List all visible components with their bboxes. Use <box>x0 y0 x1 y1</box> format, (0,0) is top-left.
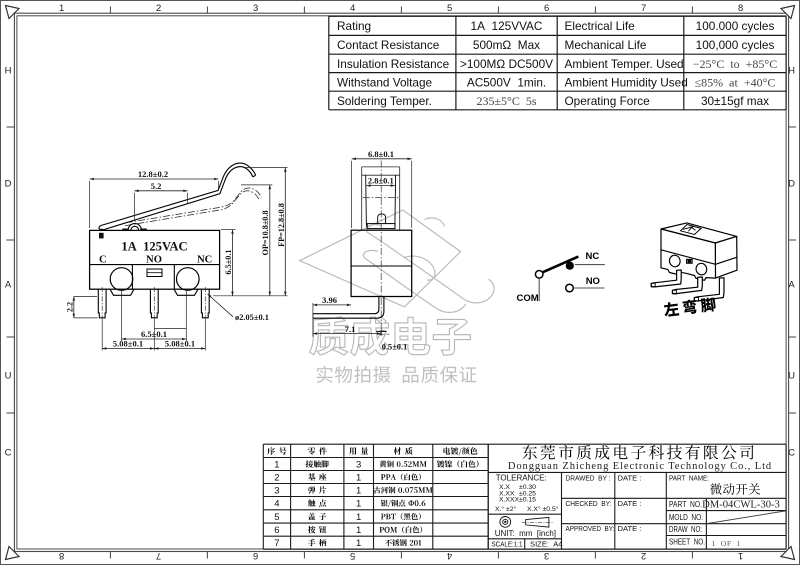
svg-text:AC500V 1min.: AC500V 1min. <box>467 75 546 89</box>
svg-text:6.5±0.1: 6.5±0.1 <box>224 250 233 275</box>
svg-text:1: 1 <box>356 472 361 483</box>
svg-text:1: 1 <box>356 512 361 523</box>
svg-text:2.8±0.1: 2.8±0.1 <box>368 176 394 186</box>
svg-text:C: C <box>5 448 12 459</box>
svg-text:A: A <box>5 280 12 291</box>
svg-text:PART NAME:: PART NAME: <box>669 474 709 483</box>
svg-text:Mechanical Life: Mechanical Life <box>565 38 647 52</box>
svg-text:DRAW NO:: DRAW NO: <box>669 525 702 534</box>
svg-text:Contact Resistance: Contact Resistance <box>337 38 440 52</box>
svg-text:CHECKED BY:: CHECKED BY: <box>566 499 612 508</box>
svg-text:DRAWED BY :: DRAWED BY : <box>566 474 611 483</box>
svg-text:6: 6 <box>253 550 258 561</box>
svg-text:U: U <box>788 371 795 382</box>
svg-text:−25°C to +85°C: −25°C to +85°C <box>693 57 777 71</box>
svg-text:3: 3 <box>274 485 279 496</box>
svg-text:5: 5 <box>350 550 355 561</box>
svg-text:Ambient Temper. Used: Ambient Temper. Used <box>565 57 684 71</box>
svg-text:3.96: 3.96 <box>322 295 337 305</box>
svg-text:DATE :: DATE : <box>618 524 642 533</box>
svg-text:SCALE:1:1: SCALE:1:1 <box>492 540 523 549</box>
svg-text:NO: NO <box>586 276 600 287</box>
svg-text:ø2.05±0.1: ø2.05±0.1 <box>235 313 269 322</box>
svg-text:1A 125VVAC: 1A 125VVAC <box>471 19 543 33</box>
svg-text:MOLD NO.: MOLD NO. <box>669 513 703 522</box>
svg-text:Electrical Life: Electrical Life <box>565 19 636 33</box>
svg-text:2: 2 <box>274 472 279 483</box>
svg-text:DM-04CWL-30-3: DM-04CWL-30-3 <box>702 500 780 511</box>
svg-text:100.000 cycles: 100.000 cycles <box>696 19 775 33</box>
svg-text:2: 2 <box>156 3 161 14</box>
svg-text:2: 2 <box>641 550 646 561</box>
svg-text:H: H <box>788 66 795 77</box>
svg-text:UNIT: mm [inch]: UNIT: mm [inch] <box>495 529 556 538</box>
svg-text:1: 1 <box>356 525 361 536</box>
svg-text:7: 7 <box>156 550 161 561</box>
svg-text:5.2: 5.2 <box>151 181 162 191</box>
svg-text:235±5°C 5s: 235±5°C 5s <box>476 94 536 108</box>
svg-text:7.1: 7.1 <box>345 324 356 334</box>
svg-text:1: 1 <box>738 550 743 561</box>
svg-text:Soldering Temper.: Soldering Temper. <box>337 94 432 108</box>
svg-text:8: 8 <box>738 3 743 14</box>
svg-text:H: H <box>5 66 12 77</box>
svg-text:DATE :: DATE : <box>618 499 642 508</box>
svg-text:2.2: 2.2 <box>66 302 75 312</box>
svg-text:4: 4 <box>350 3 355 14</box>
svg-text:Ambient Humidity Used: Ambient Humidity Used <box>565 75 688 89</box>
svg-text:APPROVED BY:: APPROVED BY: <box>566 524 615 533</box>
svg-text:8: 8 <box>59 550 64 561</box>
svg-text:6.8±0.1: 6.8±0.1 <box>368 149 394 159</box>
svg-text:TOLERANCE:: TOLERANCE: <box>496 474 547 483</box>
svg-text:100,000 cycles: 100,000 cycles <box>696 38 775 52</box>
svg-text:6: 6 <box>544 3 549 14</box>
svg-text:SIZE: A4: SIZE: A4 <box>530 540 563 549</box>
svg-text:A: A <box>788 280 795 291</box>
svg-text:Insulation Resistance: Insulation Resistance <box>337 57 450 71</box>
svg-text:1: 1 <box>356 485 361 496</box>
svg-text:4: 4 <box>274 499 279 510</box>
svg-text:1: 1 <box>59 3 64 14</box>
svg-text:±0.15: ±0.15 <box>519 497 536 504</box>
svg-text:Rating: Rating <box>337 19 371 33</box>
svg-text:12.8±0.2: 12.8±0.2 <box>138 169 168 179</box>
svg-text:5: 5 <box>274 512 279 523</box>
svg-text:NC: NC <box>197 255 212 266</box>
svg-text:COM: COM <box>517 293 539 304</box>
svg-text:5: 5 <box>447 3 452 14</box>
svg-text:7: 7 <box>641 3 646 14</box>
svg-text:4: 4 <box>447 550 452 561</box>
svg-text:X.° ±2°: X.° ±2° <box>495 505 517 513</box>
svg-text:6: 6 <box>274 525 279 536</box>
svg-text:3: 3 <box>544 550 549 561</box>
svg-text:5.08±0.1: 5.08±0.1 <box>113 339 143 349</box>
svg-text:30±15gf max: 30±15gf max <box>701 94 769 108</box>
svg-text:7: 7 <box>274 538 279 549</box>
svg-text:NC: NC <box>586 251 600 262</box>
svg-text:X.X° ±0.5°: X.X° ±0.5° <box>527 505 559 513</box>
svg-text:OP=10.8±0.8: OP=10.8±0.8 <box>261 210 270 255</box>
svg-text:3: 3 <box>356 459 361 470</box>
svg-text:>100MΩ DC500V: >100MΩ DC500V <box>460 57 553 71</box>
svg-text:D: D <box>788 179 795 190</box>
svg-text:D: D <box>5 179 12 190</box>
svg-text:SHEET NO.: SHEET NO. <box>669 537 705 546</box>
svg-text:Operating Force: Operating Force <box>565 94 651 108</box>
svg-text:PART NO.: PART NO. <box>669 500 702 509</box>
svg-text:0.5±0.1: 0.5±0.1 <box>382 342 408 351</box>
svg-text:500mΩ Max: 500mΩ Max <box>473 38 540 52</box>
svg-text:C: C <box>99 255 107 266</box>
svg-text:NO: NO <box>146 255 162 266</box>
svg-text:1: 1 <box>274 459 279 470</box>
svg-text:3: 3 <box>253 3 258 14</box>
svg-text:1: 1 <box>356 499 361 510</box>
svg-text:X.XXX: X.XXX <box>499 497 519 504</box>
svg-text:Withstand Voltage: Withstand Voltage <box>337 75 433 89</box>
svg-text:5.08±0.1: 5.08±0.1 <box>165 339 195 349</box>
svg-text:C: C <box>788 448 795 459</box>
svg-text:1 OF 1: 1 OF 1 <box>712 539 742 548</box>
svg-text:1A 125VAC: 1A 125VAC <box>121 240 187 254</box>
svg-text:Dongguan Zhicheng Electronic T: Dongguan Zhicheng Electronic Technology … <box>508 461 772 472</box>
svg-text:DATE :: DATE : <box>618 474 642 483</box>
svg-text:≤85% at +40°C: ≤85% at +40°C <box>695 75 776 89</box>
svg-text:U: U <box>5 371 12 382</box>
svg-text:FP=12.8±0.8: FP=12.8±0.8 <box>277 203 286 247</box>
svg-text:1: 1 <box>356 538 361 549</box>
